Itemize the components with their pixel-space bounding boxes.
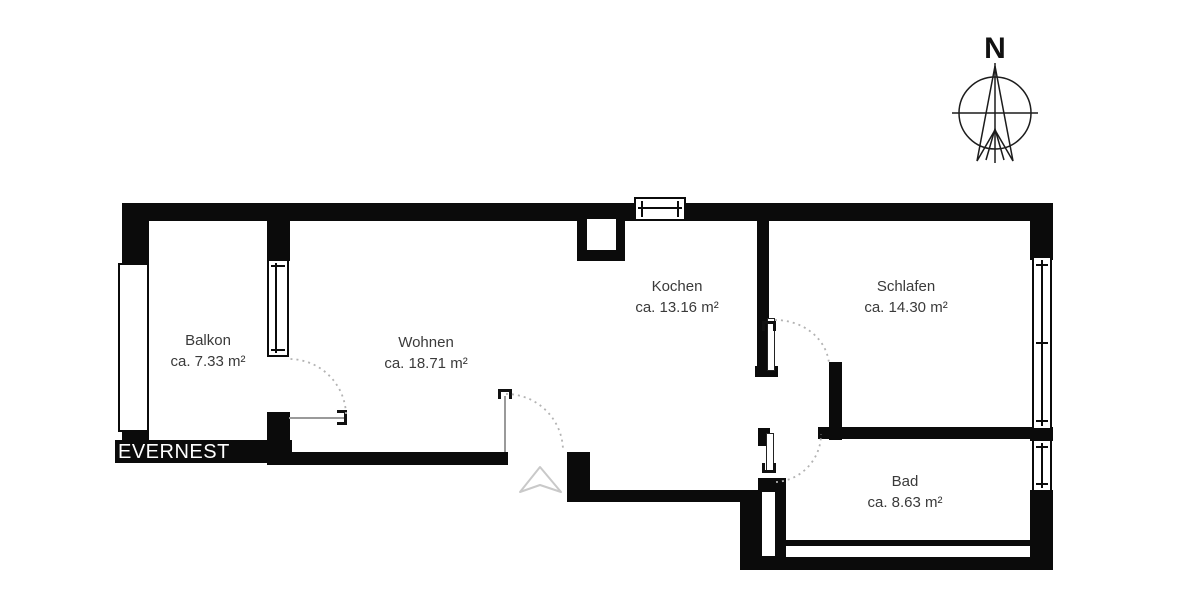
entrance-marker-icon <box>520 467 561 492</box>
room-area: ca. 18.71 m² <box>346 353 506 374</box>
compass-icon <box>952 63 1038 163</box>
room-name: Kochen <box>597 276 757 297</box>
room-label-bad: Bad ca. 8.63 m² <box>825 471 985 513</box>
room-area: ca. 13.16 m² <box>597 297 757 318</box>
room-label-balkon: Balkon ca. 7.33 m² <box>128 330 288 372</box>
door-arc-entrance <box>506 394 563 451</box>
room-name: Balkon <box>128 330 288 351</box>
room-label-wohnen: Wohnen ca. 18.71 m² <box>346 332 506 374</box>
room-name: Wohnen <box>346 332 506 353</box>
room-area: ca. 14.30 m² <box>826 297 986 318</box>
door-arc-balcony <box>290 359 346 414</box>
compass-north-label: N <box>984 32 1006 65</box>
room-name: Bad <box>825 471 985 492</box>
room-label-schlafen: Schlafen ca. 14.30 m² <box>826 276 986 318</box>
floor-plan: N Balkon ca. 7.33 m² Wohnen ca. 18.71 m²… <box>0 0 1200 600</box>
room-area: ca. 7.33 m² <box>128 351 288 372</box>
brand-logo: EVERNEST <box>118 441 230 464</box>
room-area: ca. 8.63 m² <box>825 492 985 513</box>
door-arc-bath <box>776 434 821 482</box>
door-arc-bedroom <box>775 320 829 364</box>
room-label-kochen: Kochen ca. 13.16 m² <box>597 276 757 318</box>
room-name: Schlafen <box>826 276 986 297</box>
